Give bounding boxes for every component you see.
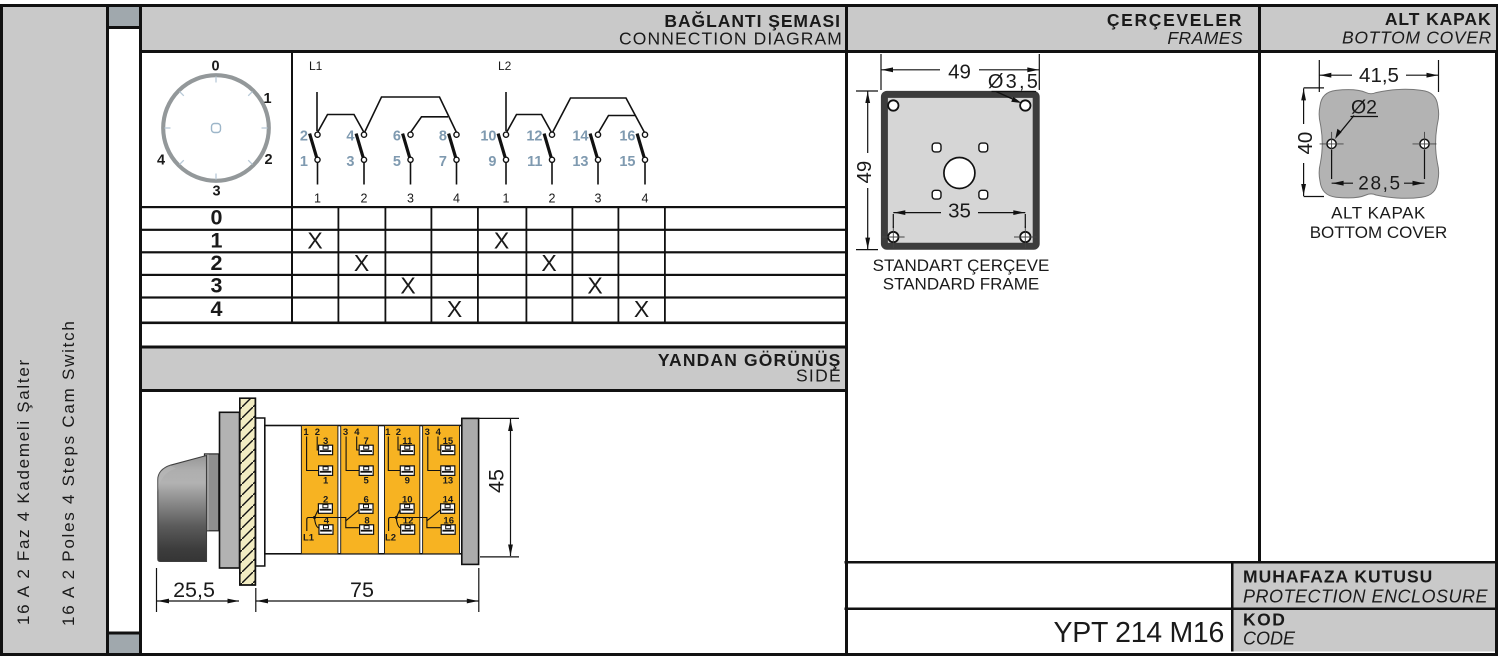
svg-text:5: 5 [393,154,401,170]
svg-text:Ø3,5: Ø3,5 [988,71,1040,93]
svg-text:13: 13 [443,476,454,487]
svg-text:X: X [447,296,462,322]
svg-text:X: X [634,296,649,322]
svg-text:4: 4 [157,152,165,168]
svg-text:15: 15 [619,154,635,170]
svg-text:CODE: CODE [1243,629,1296,649]
svg-text:KOD: KOD [1243,610,1286,630]
svg-text:4: 4 [354,427,360,438]
svg-text:4: 4 [346,129,354,145]
svg-text:3: 3 [343,427,348,438]
svg-text:PROTECTION ENCLOSURE: PROTECTION ENCLOSURE [1243,587,1489,607]
svg-text:40: 40 [1294,132,1317,155]
svg-text:10: 10 [480,129,496,145]
svg-text:Ø2: Ø2 [1351,97,1377,119]
svg-text:35: 35 [948,200,971,223]
svg-text:3: 3 [346,154,354,170]
svg-text:3: 3 [407,192,414,206]
svg-text:1: 1 [503,192,510,206]
svg-text:1: 1 [300,154,308,170]
svg-text:49: 49 [853,161,876,184]
svg-text:X: X [541,250,556,276]
svg-text:BOTTOM COVER: BOTTOM COVER [1342,28,1492,48]
svg-text:14: 14 [572,129,588,145]
svg-text:FRAMES: FRAMES [1167,28,1243,48]
svg-text:49: 49 [948,61,971,84]
svg-text:1: 1 [211,229,223,253]
svg-text:BOTTOM COVER: BOTTOM COVER [1310,223,1448,242]
svg-text:STANDART ÇERÇEVE: STANDART ÇERÇEVE [873,256,1050,275]
svg-text:25,5: 25,5 [173,578,215,602]
svg-text:4: 4 [453,192,460,206]
svg-text:2: 2 [361,192,368,206]
svg-text:4: 4 [436,427,442,438]
svg-text:1: 1 [385,427,391,438]
svg-text:3: 3 [595,192,602,206]
svg-text:11: 11 [527,154,542,170]
svg-text:1: 1 [323,476,329,487]
svg-text:16 A 2 Faz 4 Kademeli Şalter: 16 A 2 Faz 4 Kademeli Şalter [14,358,33,625]
svg-text:L2: L2 [498,59,512,73]
svg-text:1: 1 [303,427,309,438]
svg-text:X: X [307,228,322,254]
svg-text:2: 2 [396,427,401,438]
svg-text:X: X [400,273,415,299]
svg-text:X: X [587,273,602,299]
svg-text:6: 6 [393,129,401,145]
svg-text:MUHAFAZA KUTUSU: MUHAFAZA KUTUSU [1243,567,1433,587]
svg-text:ÇERÇEVELER: ÇERÇEVELER [1107,10,1243,30]
svg-text:2: 2 [315,427,320,438]
svg-text:13: 13 [572,154,588,170]
svg-text:ALT KAPAK: ALT KAPAK [1331,204,1426,223]
svg-text:12: 12 [526,129,542,145]
svg-text:16 A 2 Poles 4 Steps Cam Switc: 16 A 2 Poles 4 Steps Cam Switch [59,319,78,626]
svg-text:0: 0 [211,59,219,75]
svg-text:7: 7 [439,154,447,170]
svg-text:L2: L2 [385,533,396,544]
svg-text:28,5: 28,5 [1358,174,1401,195]
svg-text:8: 8 [439,129,447,145]
svg-text:L1: L1 [309,59,323,73]
svg-text:ALT KAPAK: ALT KAPAK [1385,9,1492,29]
svg-text:2: 2 [549,192,556,206]
svg-text:5: 5 [364,476,370,487]
svg-text:9: 9 [405,476,410,487]
svg-text:3: 3 [425,427,430,438]
svg-text:45: 45 [485,469,509,493]
svg-text:1: 1 [263,91,271,107]
svg-text:4: 4 [642,192,649,206]
svg-text:2: 2 [211,251,223,275]
svg-text:YPT 214 M16: YPT 214 M16 [1054,617,1224,649]
svg-text:75: 75 [350,578,374,602]
svg-text:2: 2 [300,129,308,145]
svg-text:CONNECTION DIAGRAM: CONNECTION DIAGRAM [619,29,843,49]
svg-text:4: 4 [211,297,223,321]
svg-text:16: 16 [619,129,635,145]
svg-text:L1: L1 [303,533,315,544]
svg-text:41,5: 41,5 [1359,64,1399,87]
svg-text:SIDE: SIDE [796,366,842,386]
svg-text:3: 3 [212,184,220,200]
svg-text:1: 1 [314,192,321,206]
svg-text:X: X [494,228,509,254]
svg-text:0: 0 [211,206,223,230]
svg-text:3: 3 [211,274,223,298]
svg-text:2: 2 [264,152,272,168]
svg-text:9: 9 [488,154,496,170]
svg-text:X: X [354,250,369,276]
svg-text:STANDARD FRAME: STANDARD FRAME [883,275,1039,294]
